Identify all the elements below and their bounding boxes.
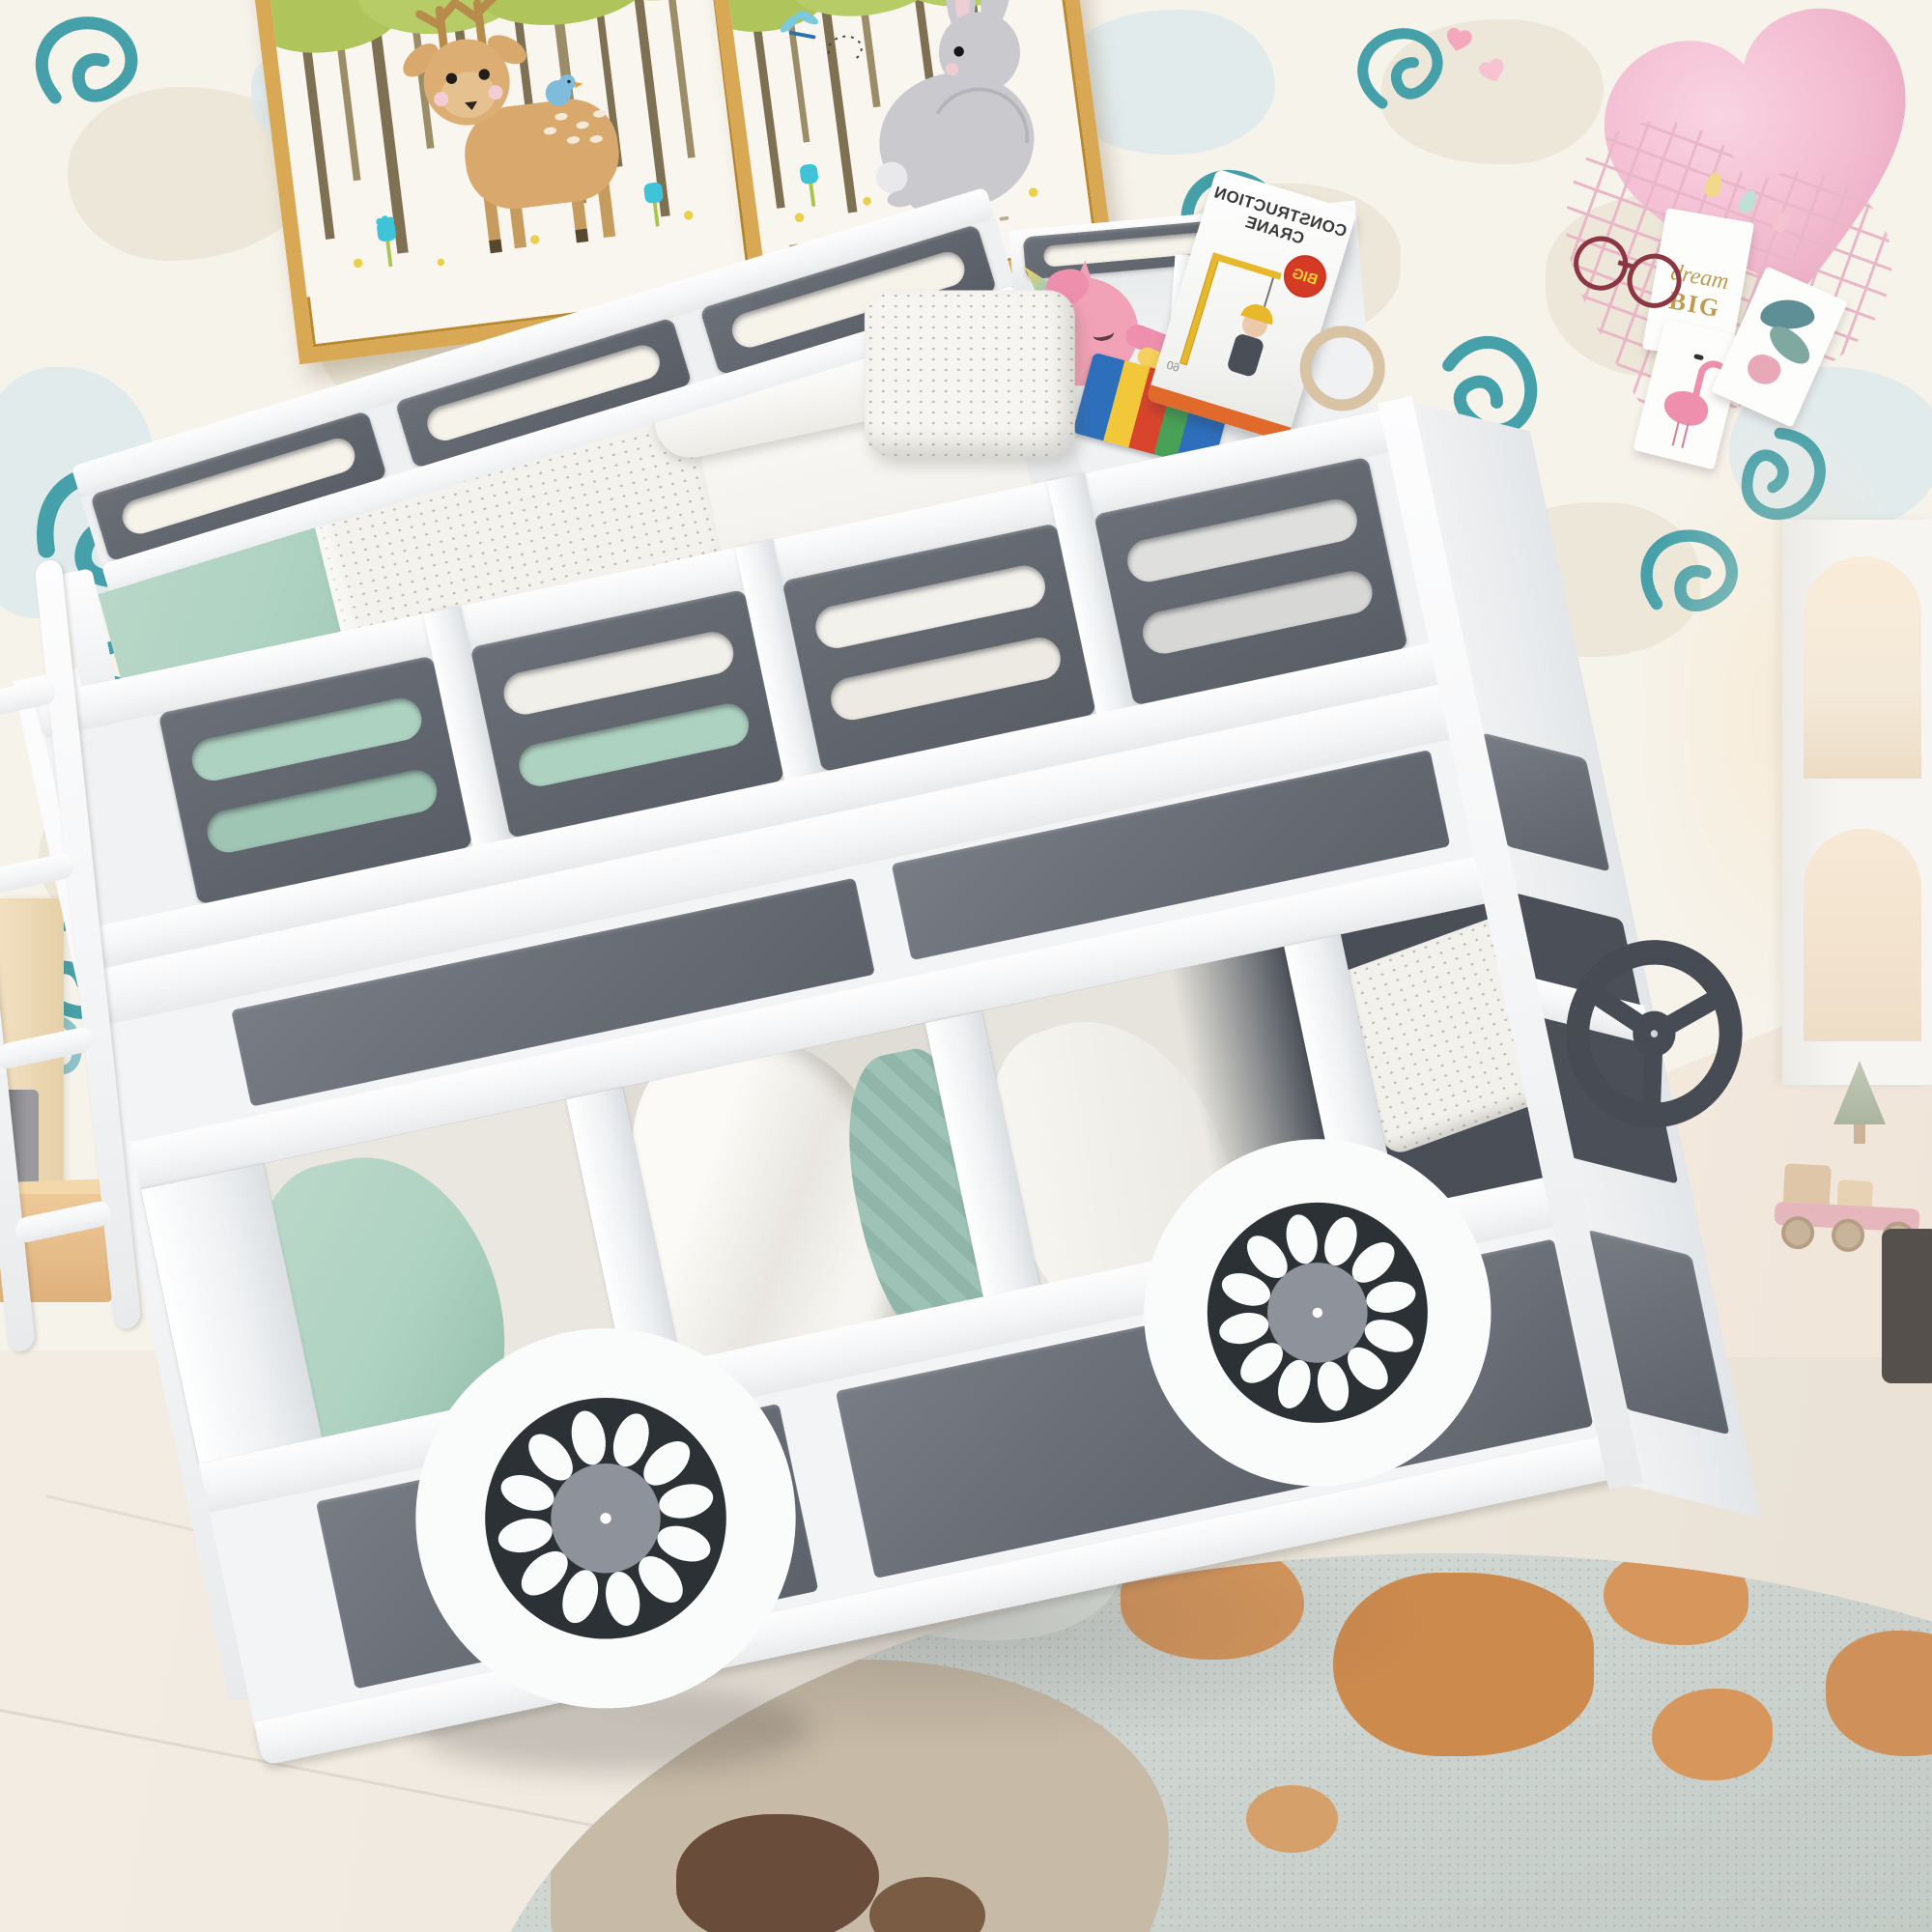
ladder-rung: [0, 1025, 94, 1070]
floral-leaf: [1760, 299, 1814, 328]
wooden-tree-toy: [1833, 1061, 1886, 1146]
rug-map-orange: [1652, 1689, 1773, 1780]
shelf-arch-niche: [1804, 556, 1921, 779]
rail-cutout: [1123, 496, 1361, 585]
rail-cutout: [515, 700, 753, 790]
ladder-rung: [0, 677, 57, 723]
big-brand-badge: BIG: [1278, 250, 1331, 303]
rug-map-brown: [676, 1814, 879, 1932]
rail-cutout: [1139, 567, 1377, 657]
flamingo-beak: [1693, 354, 1704, 360]
tree-trunk: [1854, 1124, 1865, 1144]
deer-art: [268, 0, 718, 317]
shelf-arch-niche: [1804, 829, 1921, 1041]
rail-cutout: [811, 562, 1049, 652]
dark-basket: [1882, 1229, 1932, 1383]
box-size-label: 60: [1165, 358, 1181, 375]
ladder-rung: [0, 851, 75, 896]
rail-cutout: [203, 766, 440, 856]
big-brand-label: BIG: [1291, 265, 1320, 288]
rail-cutout: [827, 634, 1065, 724]
floral-flower: [1743, 350, 1784, 389]
front-wheel: [1099, 1095, 1535, 1531]
rear-wheel: [367, 1280, 843, 1756]
rail-cutout: [499, 628, 737, 718]
train-wheel: [1831, 1218, 1865, 1253]
train-wheel: [1780, 1215, 1815, 1250]
crane-jib: [1211, 252, 1282, 279]
play-shelf-unit: [1782, 520, 1932, 1085]
crane-graphic: [1179, 252, 1221, 365]
rail-cutout: [188, 695, 426, 784]
child-figure-body: [1226, 332, 1264, 378]
steering-wheel: [1562, 936, 1747, 1131]
ladder-rung: [14, 1199, 112, 1244]
kids-room-bus-bunk-bed-photo: dream BIG: [0, 0, 1932, 1932]
tree-cone: [1833, 1061, 1886, 1124]
flamingo-legs: [1672, 421, 1680, 446]
top-bunk-pillow: [865, 291, 1075, 457]
